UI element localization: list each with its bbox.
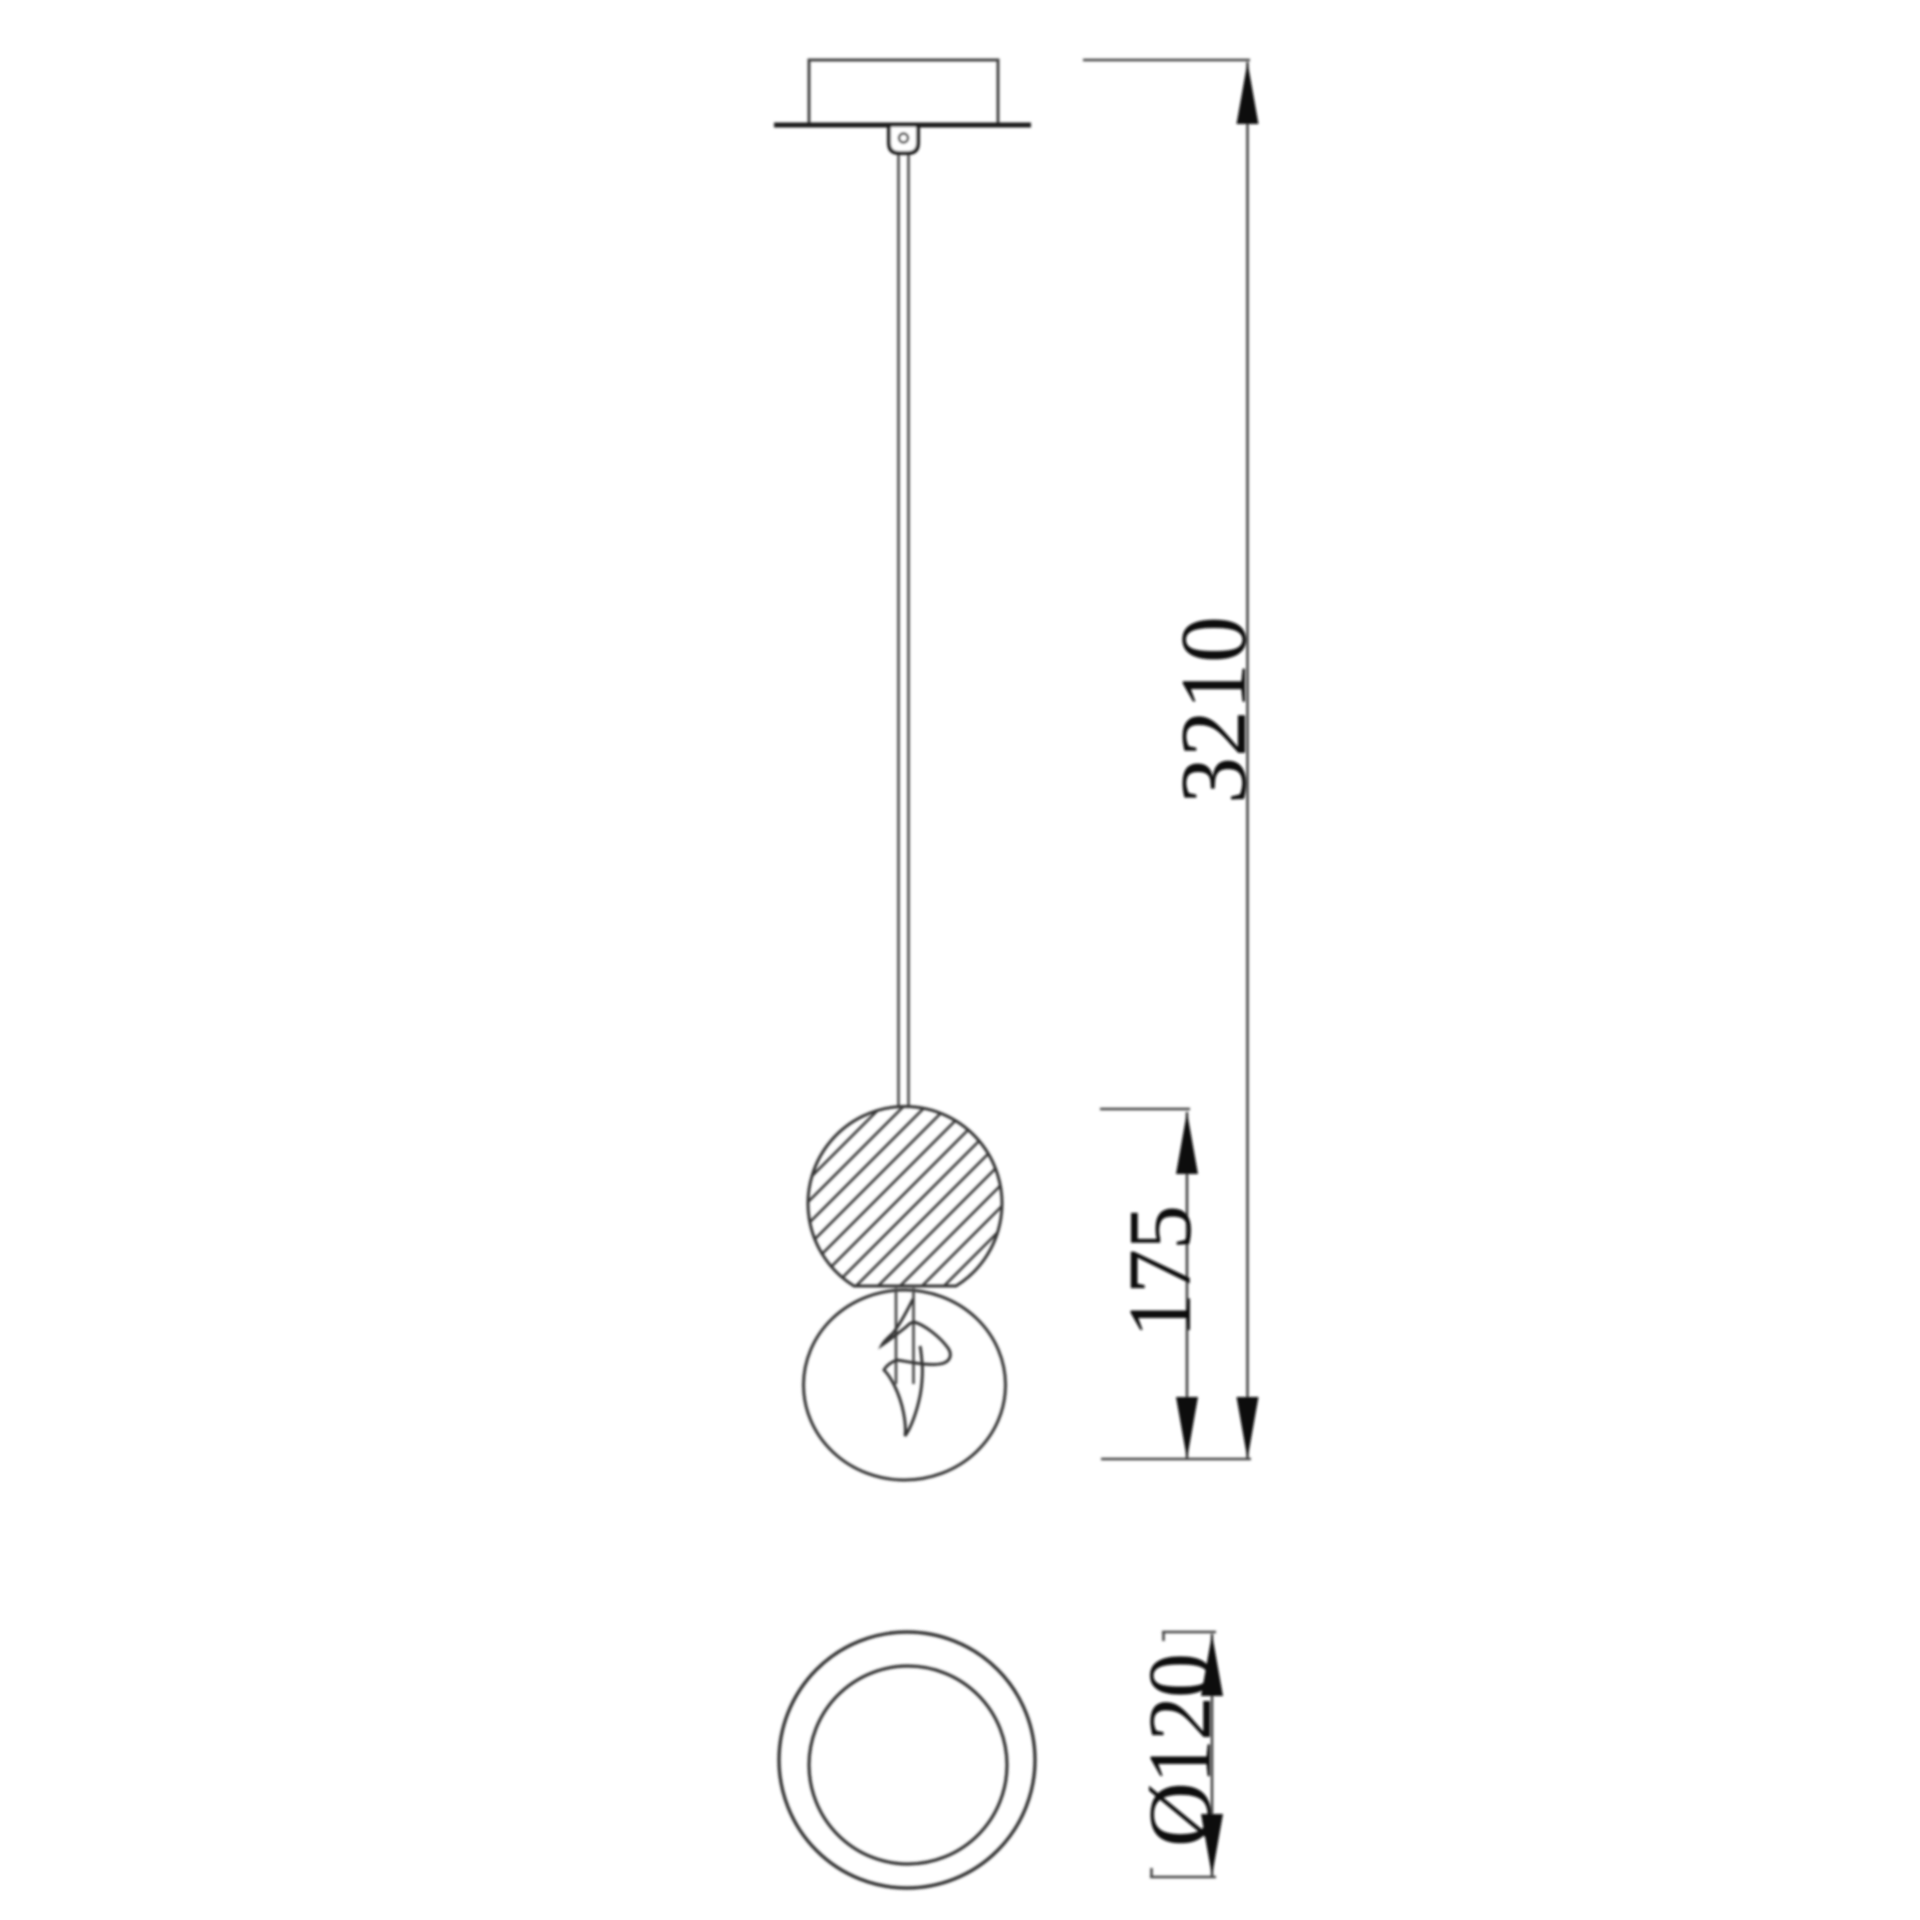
svg-text:3210: 3210 [1162, 616, 1266, 804]
svg-text:175: 175 [1111, 1206, 1210, 1338]
svg-text:Ø120: Ø120 [1131, 1655, 1230, 1847]
